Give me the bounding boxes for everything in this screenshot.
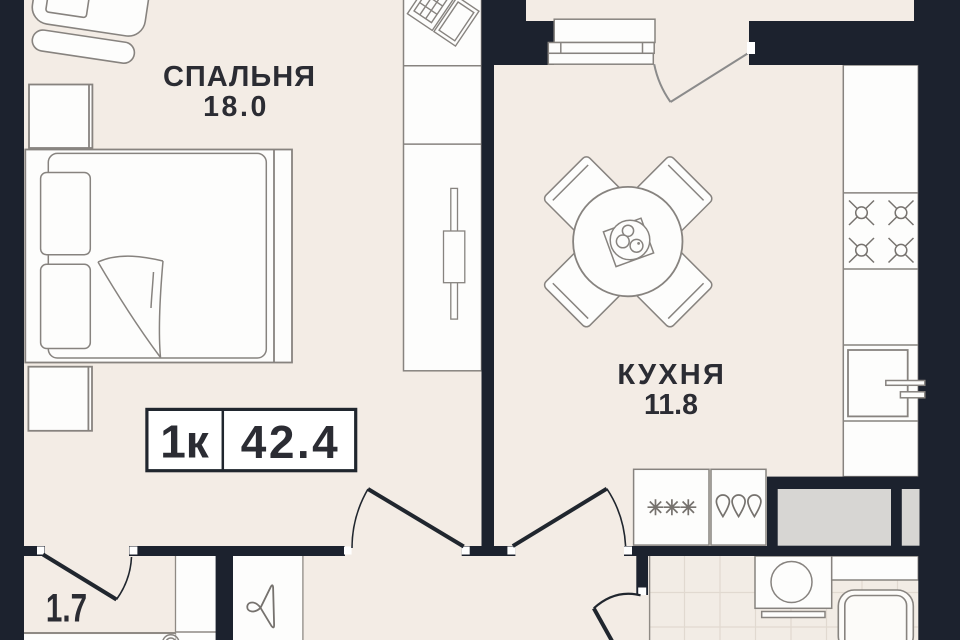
- svg-text:1.7: 1.7: [46, 586, 87, 630]
- svg-text:42.4: 42.4: [241, 416, 341, 468]
- svg-text:1к: 1к: [160, 416, 210, 468]
- svg-text:КУХНЯ: КУХНЯ: [617, 359, 726, 391]
- svg-text:11.8: 11.8: [644, 389, 698, 421]
- svg-text:18.0: 18.0: [203, 91, 269, 123]
- svg-text:СПАЛЬНЯ: СПАЛЬНЯ: [163, 61, 316, 93]
